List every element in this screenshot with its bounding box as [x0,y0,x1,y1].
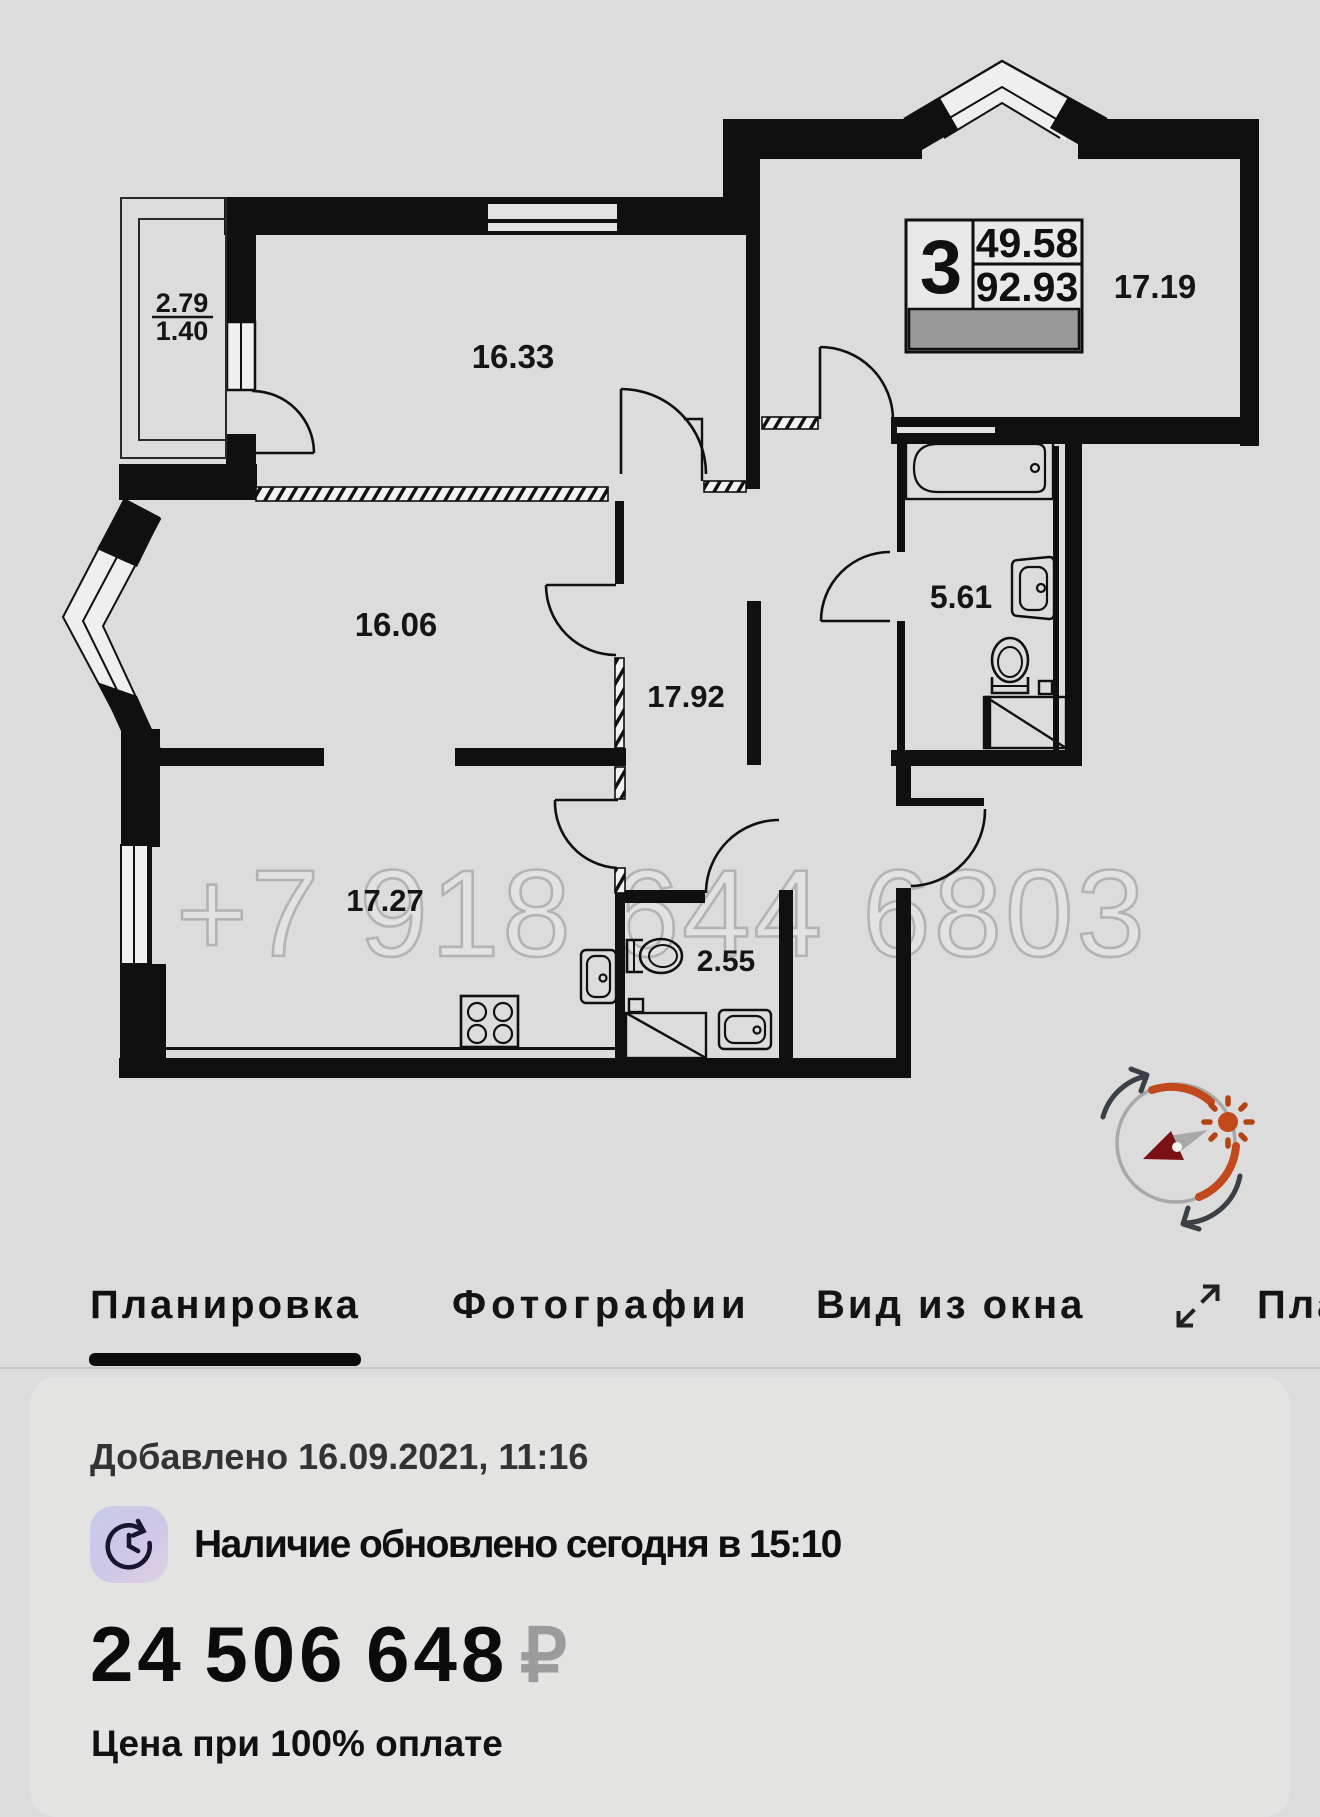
svg-text:17.27: 17.27 [346,883,424,918]
svg-text:16.06: 16.06 [355,606,438,643]
svg-text:49.58: 49.58 [976,220,1079,266]
svg-text:17.92: 17.92 [647,679,725,714]
svg-text:5.61: 5.61 [930,579,992,615]
svg-text:2.55: 2.55 [697,945,755,978]
svg-text:92.93: 92.93 [976,264,1079,310]
svg-text:17.19: 17.19 [1114,268,1197,305]
svg-text:2.79: 2.79 [156,288,209,318]
svg-text:+7 918 644 6803: +7 918 644 6803 [176,846,1148,983]
svg-text:16.33: 16.33 [472,338,555,375]
svg-text:1.40: 1.40 [156,316,209,346]
svg-text:3: 3 [920,225,962,310]
